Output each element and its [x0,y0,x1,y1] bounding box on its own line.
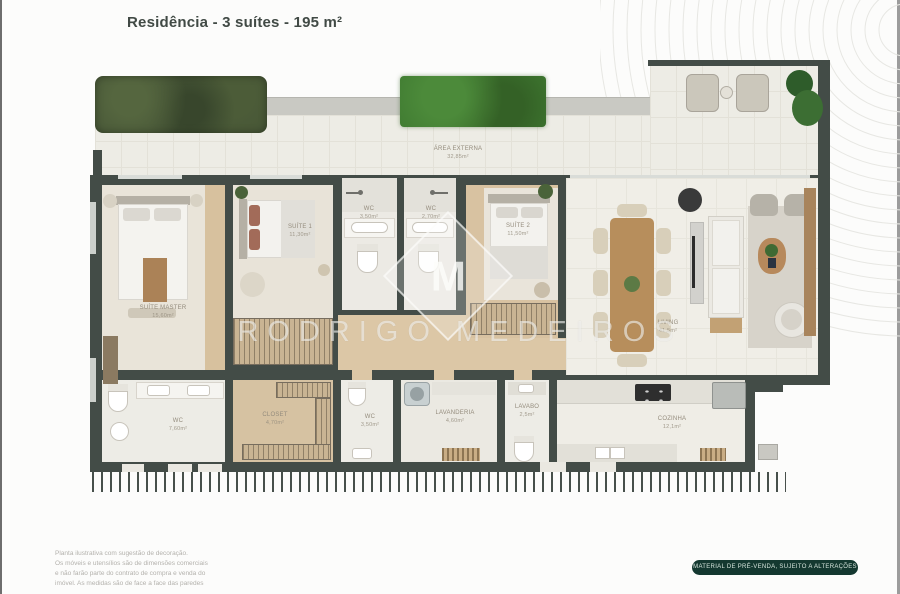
nightstand [103,194,117,208]
disclaimer-text: Planta ilustrativa com sugestão de decor… [55,549,208,589]
planter-shrubs [95,76,267,133]
toilet [357,251,378,273]
plant [538,184,553,199]
dining-chair [656,270,671,296]
wall-stub [755,382,783,392]
shower-head-icon [358,190,363,195]
disclaimer-line: e não farão parte do contrato de compra … [55,569,208,579]
shower-head-icon [434,192,448,194]
table-centerpiece [624,276,640,292]
door-opening [540,462,566,472]
stool [534,282,550,298]
deck-edge [92,472,786,492]
terrace-wall-top [648,60,830,66]
stool [318,264,330,276]
toilet-tank [108,384,128,391]
sink [351,222,388,233]
floorplan: ÁREA EXTERNA32,85m² [90,60,830,494]
dining-chair [617,204,647,217]
closet-cabinet [315,398,331,448]
door-opening [168,464,192,472]
page-edge-left [0,0,2,594]
pillow [123,208,150,221]
wall-stub-left [93,150,102,177]
watermark-monogram: M [431,252,466,300]
sink [518,384,534,393]
plant [765,244,778,257]
sink [147,385,170,396]
toilet [348,388,366,406]
presale-badge: MATERIAL DE PRÉ-VENDA, SUJEITO A ALTERAÇ… [692,560,858,575]
room-label-lavanderia: LAVANDERIA4,60m² [435,410,474,425]
sink [187,385,210,396]
window [118,175,182,179]
plant [235,186,248,199]
sofa-cushion [712,220,740,266]
pillow [521,207,543,218]
kitchen-sink [595,447,625,459]
window [90,358,96,402]
disclaimer-line: imóvel. As medidas são de face a face da… [55,579,208,589]
pillow [249,205,260,226]
door-opening [590,462,616,472]
toilet [108,391,128,412]
dining-chair [593,228,608,254]
room-label-closet: CLOSET4,70m² [262,412,287,427]
planter-grass [400,76,546,127]
room-label-wc-2: WC2,70m² [422,206,440,221]
sideboard [804,188,816,336]
round-rug [240,272,265,297]
room-label-cozinha: COZINHA12,1m² [658,416,686,431]
lounge-chair [736,74,769,112]
cooktop [635,384,671,401]
toilet-tank [357,244,378,251]
wood-mat [700,448,726,461]
service-box [758,444,778,460]
door-opening [352,370,372,380]
decor-bottle [768,258,776,268]
dining-chair [617,354,647,367]
lounge-chair [686,74,719,112]
dining-chair [593,270,608,296]
room-label-lavabo: LAVABO2,5m² [515,404,539,419]
tv [692,236,695,288]
room-label-wc-1: WC3,50m² [360,206,378,221]
laundry-counter [432,382,496,395]
closet-cabinet [276,382,331,398]
floorplan-page: Residência - 3 suítes - 195 m² ÁREA EXTE… [0,0,900,594]
fridge [712,382,746,409]
sink [352,448,372,459]
shower-head-icon [430,190,435,195]
pillow [249,229,260,250]
disclaimer-line: Os móveis e utensílios são de dimensões … [55,559,208,569]
toilet [514,442,534,462]
dining-chair [656,228,671,254]
watermark-brand: RODRIGO MEDEIROS [90,316,830,349]
room-label-wc-master: WC7,60m² [169,418,187,433]
door-opening [122,464,144,472]
page-title: Residência - 3 suítes - 195 m² [127,14,342,31]
bed-headboard [239,199,247,259]
door-opening [198,464,222,472]
window [250,175,302,179]
terrace-plant [792,90,823,126]
wood-mat [442,448,480,461]
pedestal-sink [110,422,129,441]
armchair [750,194,778,216]
closet-cabinet [242,444,331,460]
pendant-table [678,188,702,212]
disclaimer-line: Planta ilustrativa com sugestão de decor… [55,549,208,559]
pillow [496,207,518,218]
sofa-cushion [712,268,740,314]
room-label-suite-1: SUÍTE 111,30m² [288,224,312,239]
pillow [154,208,181,221]
door-opening [434,370,454,380]
terrace-side-table [720,86,733,99]
door-opening [514,370,532,380]
terrace-label: ÁREA EXTERNA32,85m² [434,146,482,161]
bed-runner [143,258,167,302]
washing-machine-door [410,387,424,401]
window [90,202,96,254]
room-label-suite-2: SUÍTE 211,50m² [506,223,530,238]
room-label-wc-3: WC3,50m² [361,414,379,429]
nightstand [190,194,203,207]
